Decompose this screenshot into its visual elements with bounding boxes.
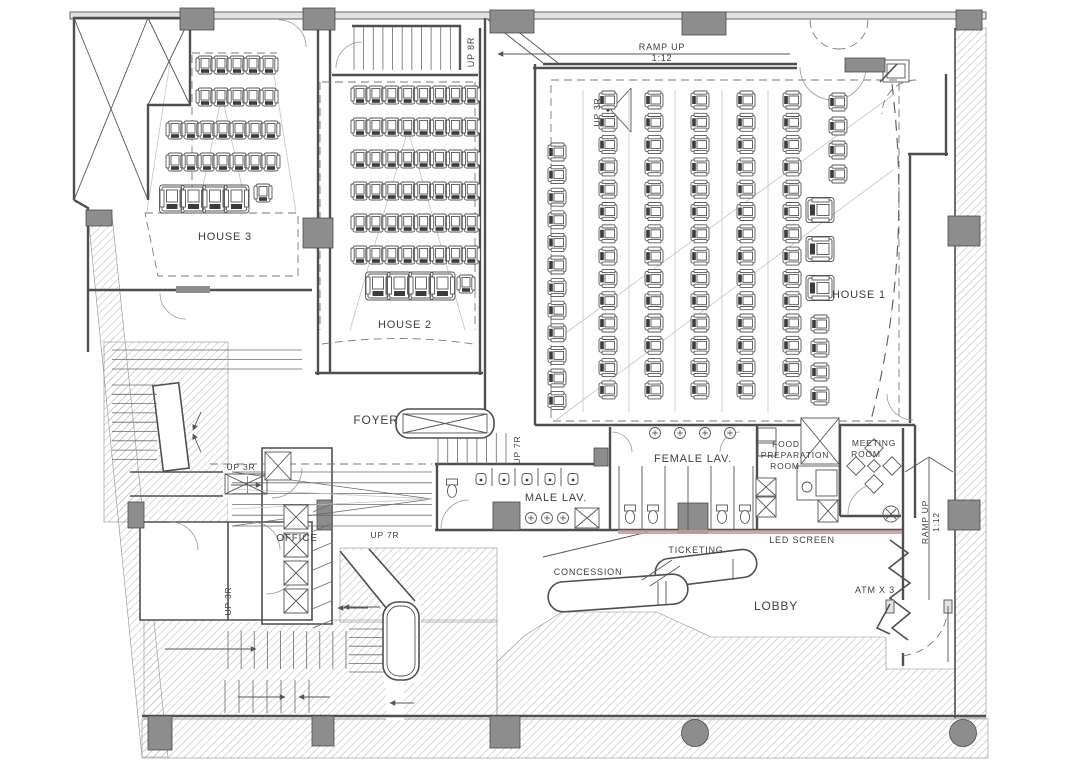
seat (691, 158, 709, 176)
seat (548, 324, 566, 342)
sink (650, 428, 661, 439)
seat (462, 86, 480, 104)
seat (244, 88, 262, 106)
seat (383, 150, 401, 168)
seat (399, 246, 417, 264)
label-up-3r-office: UP 3R (227, 462, 256, 472)
floor-drain (883, 506, 899, 522)
seat (691, 225, 709, 243)
label-office: OFFICE (276, 533, 317, 544)
seat (783, 136, 801, 154)
seat (383, 118, 401, 136)
seat (691, 136, 709, 154)
seat (599, 158, 617, 176)
seat (260, 88, 278, 106)
seat (783, 269, 801, 287)
seat (783, 91, 801, 109)
seat (431, 86, 449, 104)
label-meeting-2: ROOM (851, 449, 881, 459)
column (682, 12, 726, 35)
seat (548, 256, 566, 274)
seat (691, 314, 709, 332)
label-food-prep-1: FOOD (772, 439, 800, 449)
label-food-prep-3: ROOM (770, 461, 800, 471)
seat (212, 56, 230, 74)
label-ticketing: TICKETING (668, 545, 723, 555)
seat (351, 214, 369, 232)
accessible-toilet (447, 479, 458, 497)
seat (462, 182, 480, 200)
seat (783, 247, 801, 265)
seat (783, 336, 801, 354)
seat (737, 336, 755, 354)
seat (415, 86, 433, 104)
house3-screen (176, 286, 210, 293)
label-up-8r: UP 8R (466, 37, 476, 67)
seat (691, 247, 709, 265)
premium-seat (806, 237, 834, 262)
seat (548, 301, 566, 319)
seat (230, 121, 248, 139)
seat (367, 214, 385, 232)
column (678, 503, 708, 533)
label-house-3: HOUSE 3 (198, 231, 252, 243)
seat (691, 91, 709, 109)
label-ramp-up-right: RAMP UP (920, 500, 930, 544)
column (128, 502, 144, 528)
seat (351, 182, 369, 200)
seat (599, 247, 617, 265)
seat (645, 336, 663, 354)
seat (548, 346, 566, 364)
seat (811, 339, 829, 357)
seat (811, 315, 829, 333)
label-house-2: HOUSE 2 (378, 319, 432, 331)
seat (182, 121, 200, 139)
column (312, 716, 334, 746)
seat (548, 143, 566, 161)
label-concession: CONCESSION (554, 567, 623, 577)
seat (462, 214, 480, 232)
seat (367, 182, 385, 200)
seat (254, 184, 272, 202)
seat (737, 203, 755, 221)
seat (399, 150, 417, 168)
seat (367, 150, 385, 168)
premium-seat (806, 276, 834, 301)
label-atm: ATM X 3 (855, 585, 895, 595)
seat (431, 118, 449, 136)
seat (415, 246, 433, 264)
seat (431, 246, 449, 264)
seat (214, 121, 232, 139)
seat (383, 214, 401, 232)
seat (182, 153, 200, 171)
seat (548, 188, 566, 206)
column (148, 716, 172, 750)
label-up-3r-house1: UP 3R (592, 98, 602, 127)
seat (645, 359, 663, 377)
seat (462, 118, 480, 136)
seat (783, 381, 801, 399)
label-house-1: HOUSE 1 (832, 289, 886, 301)
seat (262, 121, 280, 139)
seat (367, 246, 385, 264)
seat (737, 158, 755, 176)
floor-plan-sheet: HOUSE 1 HOUSE 2 HOUSE 3 FOYER FEMALE LAV… (0, 0, 1080, 780)
seat (462, 246, 480, 264)
seat (645, 180, 663, 198)
seat (399, 86, 417, 104)
label-ramp-slope-right: 1:12 (931, 512, 941, 532)
column (303, 8, 335, 30)
round-column (950, 720, 977, 747)
urinal (499, 474, 509, 485)
seat (783, 314, 801, 332)
seat (737, 314, 755, 332)
seat (548, 211, 566, 229)
seat (214, 153, 232, 171)
seat (166, 121, 184, 139)
column (594, 448, 608, 466)
seat (367, 118, 385, 136)
label-foyer: FOYER (353, 413, 398, 427)
seat (599, 336, 617, 354)
seat (737, 292, 755, 310)
seat (351, 246, 369, 264)
column (490, 716, 520, 748)
seat (415, 182, 433, 200)
seat (446, 182, 464, 200)
seat (399, 118, 417, 136)
seat (599, 180, 617, 198)
label-up-7r-ramp: UP 7R (371, 530, 400, 540)
seat (246, 153, 264, 171)
seat (645, 136, 663, 154)
seat (383, 182, 401, 200)
seat (351, 150, 369, 168)
round-column (682, 720, 709, 747)
seat (166, 153, 184, 171)
seat (829, 93, 847, 111)
seat (383, 86, 401, 104)
seat (351, 118, 369, 136)
seat (691, 381, 709, 399)
sink (558, 513, 569, 524)
column (948, 216, 980, 246)
sink (542, 513, 553, 524)
column (490, 10, 534, 33)
seat (599, 136, 617, 154)
label-meeting-1: MEETING (852, 438, 896, 448)
seat (431, 150, 449, 168)
seat (645, 314, 663, 332)
toilet (717, 505, 728, 523)
urinal (568, 474, 578, 485)
shaft-cross-bracing (74, 18, 190, 200)
column (180, 8, 214, 30)
seat (548, 392, 566, 410)
seat (783, 225, 801, 243)
seat (230, 153, 248, 171)
cinema-seating (160, 56, 848, 412)
seat (737, 381, 755, 399)
urinal (476, 474, 486, 485)
seat (737, 91, 755, 109)
column (493, 502, 520, 530)
seat (548, 166, 566, 184)
column (86, 210, 112, 226)
planter (383, 602, 419, 680)
premium-seat (430, 272, 455, 300)
seat (260, 56, 278, 74)
sink (675, 428, 686, 439)
seat (737, 225, 755, 243)
seat (783, 113, 801, 131)
led-screen-strip (618, 530, 902, 534)
seat (783, 158, 801, 176)
seat (599, 359, 617, 377)
seat (228, 88, 246, 106)
seat (399, 182, 417, 200)
column (948, 500, 980, 530)
seat (645, 292, 663, 310)
seat (691, 292, 709, 310)
concession-counter (547, 573, 689, 613)
seat (645, 113, 663, 131)
seat (548, 369, 566, 387)
seat (431, 214, 449, 232)
main-entrance-door (877, 600, 952, 662)
seat (691, 336, 709, 354)
seat (383, 246, 401, 264)
seat (198, 121, 216, 139)
seat (457, 275, 475, 293)
seat (446, 214, 464, 232)
label-up-3r-lower: UP 3R (223, 587, 233, 616)
seat (829, 141, 847, 159)
seat (829, 165, 847, 183)
column (845, 58, 885, 72)
urinal (545, 474, 555, 485)
seat (737, 359, 755, 377)
seat (829, 117, 847, 135)
seat (737, 247, 755, 265)
seat (548, 279, 566, 297)
seat (645, 269, 663, 287)
label-male-lav: MALE LAV. (525, 492, 587, 504)
label-female-lav: FEMALE LAV. (654, 453, 732, 465)
seat (737, 269, 755, 287)
seat (446, 86, 464, 104)
seat (446, 150, 464, 168)
seat (737, 113, 755, 131)
sink (725, 428, 736, 439)
seat (415, 214, 433, 232)
seat (351, 86, 369, 104)
column (303, 218, 333, 248)
seat (415, 118, 433, 136)
seat (645, 247, 663, 265)
seat (599, 314, 617, 332)
label-ramp-up-top: RAMP UP (639, 42, 685, 52)
seat (645, 225, 663, 243)
seat (645, 158, 663, 176)
seat (645, 91, 663, 109)
label-food-prep-2: PREPARATION (761, 450, 829, 460)
seat (599, 269, 617, 287)
seat (431, 182, 449, 200)
seat (691, 269, 709, 287)
seat (548, 233, 566, 251)
house1-screen-curve (870, 84, 899, 424)
toilet (648, 505, 659, 523)
seat (737, 180, 755, 198)
seat (212, 88, 230, 106)
seat (811, 387, 829, 405)
seat (198, 153, 216, 171)
seat (367, 86, 385, 104)
seat (783, 359, 801, 377)
seat (196, 56, 214, 74)
sink (700, 428, 711, 439)
seat (645, 203, 663, 221)
seat (446, 246, 464, 264)
seat (783, 292, 801, 310)
urinal (522, 474, 532, 485)
seat (446, 118, 464, 136)
floor-plan-drawing: HOUSE 1 HOUSE 2 HOUSE 3 FOYER FEMALE LAV… (0, 0, 1080, 780)
sink (526, 513, 537, 524)
seat (196, 88, 214, 106)
seat (599, 225, 617, 243)
foyer-bench (396, 409, 494, 438)
label-up-7r-stair: UP 7R (512, 436, 522, 465)
sightline-guides (147, 62, 893, 420)
seat (399, 214, 417, 232)
seat (462, 150, 480, 168)
toilet (625, 505, 636, 523)
seat (691, 359, 709, 377)
toilet (740, 505, 751, 523)
seat (691, 203, 709, 221)
seat (599, 292, 617, 310)
seat (599, 203, 617, 221)
seat (244, 56, 262, 74)
seat (811, 363, 829, 381)
seat (415, 150, 433, 168)
column (956, 10, 982, 30)
seat (228, 56, 246, 74)
label-lobby: LOBBY (754, 599, 798, 613)
premium-seat (224, 185, 249, 213)
seat (783, 203, 801, 221)
seat (599, 381, 617, 399)
seat (783, 180, 801, 198)
seat (246, 121, 264, 139)
seat (691, 180, 709, 198)
label-ramp-slope-top: 1:12 (652, 53, 673, 63)
label-led-screen: LED SCREEN (769, 535, 835, 545)
premium-seat (806, 198, 834, 223)
seat (691, 113, 709, 131)
seat (262, 153, 280, 171)
seat (737, 136, 755, 154)
seat (645, 381, 663, 399)
